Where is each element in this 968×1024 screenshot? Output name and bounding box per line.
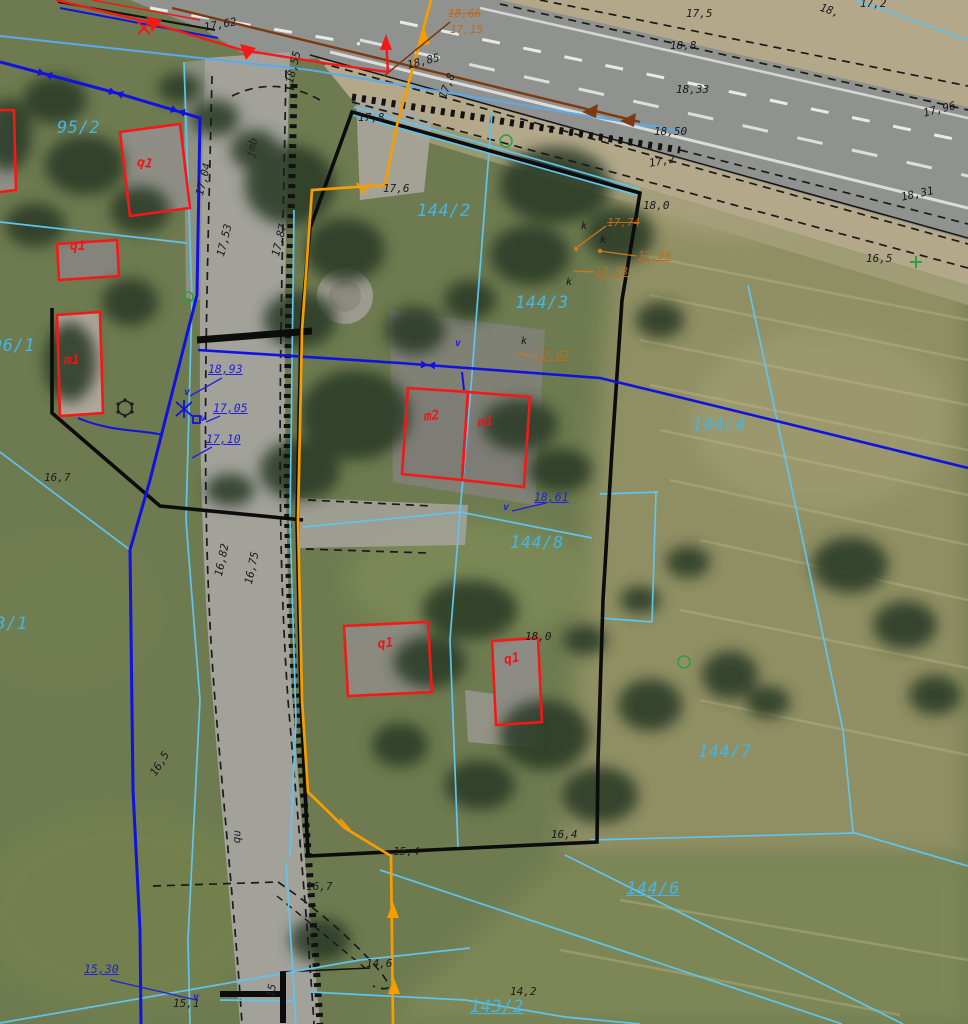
aerial-basemap (0, 0, 968, 1024)
cadastral-map-viewport[interactable]: 95/296/1143/1144/2144/3144/4144/8144/714… (0, 0, 968, 1024)
map-graphics (0, 0, 968, 1024)
